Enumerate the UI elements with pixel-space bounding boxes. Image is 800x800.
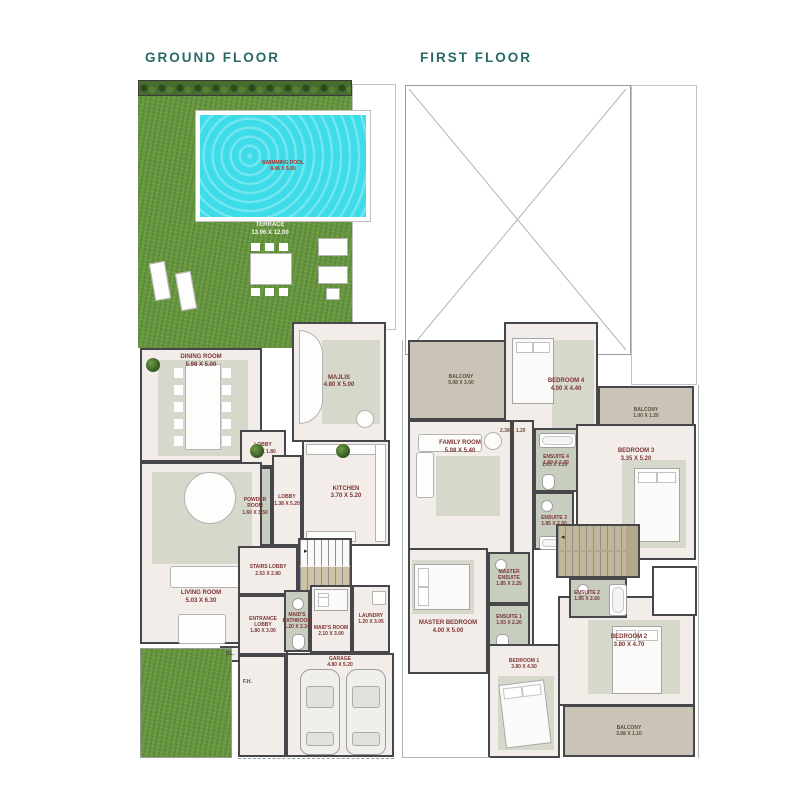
room-bedroom-1: BEDROOM 1 3.80 X 4.50 [488,644,560,758]
plant [336,444,350,458]
outdoor-armchair [318,266,348,284]
plant [146,358,160,372]
majlis-sofa [299,330,323,424]
sofa [170,566,244,588]
round-table [184,472,236,524]
room-stairs-lobby: STAIRS LOBBY 2.53 X 2.80 [238,546,298,595]
roof-cross-lines [406,86,629,353]
room-label: LIVING ROOM 5.03 X 6.30 [142,590,260,605]
stair-flight [558,552,626,576]
room-laundry: LAUNDRY 1.20 X 3.05 [352,585,390,653]
outdoor-chairs-row [251,288,291,296]
room-label: ENSUITE 3 1.85 X 2.50 [541,515,567,528]
kitchen-counter [375,444,386,542]
room-maids-bathroom: MAID'S BATHROOM 1.20 X 2.24 [284,590,310,652]
room-label: MASTER BEDROOM 4.00 X 5.00 [410,620,486,635]
bed [512,338,554,404]
room-balcony-left: BALCONY 5.08 X 3.00 [408,340,514,420]
plot-line [698,385,699,758]
washer [372,591,386,605]
stairs-direction-arrow: ▸ [304,548,308,555]
plot-line [402,757,490,758]
stair-flight [558,526,626,550]
loveseat [178,614,226,644]
room-label: MAJLIS 4.80 X 5.00 [324,375,355,390]
room-label: LOBBY 1.38 X 5.20 [274,494,300,507]
fire-hose-label: F.H. [243,679,252,685]
ground-floor-title: GROUND FLOOR [145,50,280,65]
room-ensuite-2: ENSUITE 2 1.85 X 2.60 [569,578,627,618]
pool-label: SWIMMING POOL 8.46 X 5.00 [262,160,304,173]
bathtub [539,433,576,448]
room-garage: GARAGE 4.80 X 5.20 [286,653,394,757]
toilet [542,474,555,490]
room-label: BEDROOM 1 3.80 X 4.50 [490,658,558,671]
swimming-pool: SWIMMING POOL 8.46 X 5.00 [196,111,370,221]
garden-grass-bottom [140,648,232,758]
closet-dim-label: 1.63 X 1.20 [542,462,578,468]
floorplan-canvas: GROUND FLOOR SWIMMING POOL 8.46 X 5.00 T… [0,0,800,800]
roof-void [405,85,631,355]
bed [498,679,551,748]
toilet [292,634,305,650]
family-rug [436,456,500,516]
room-label: BEDROOM 2 3.80 X 4.70 [594,634,664,649]
outdoor-chairs-row [251,243,291,251]
room-family: FAMILY ROOM 5.08 X 5.40 [408,420,512,566]
side-strip [631,85,697,385]
sink [292,598,304,610]
room-label: MASTER ENSUITE 1.85 X 2.25 [490,569,528,588]
room-ensuite-4: ENSUITE 4 1.60 X 2.30 [534,428,578,492]
terrace-name: TERRACE [210,222,330,230]
room-maids-room: MAID'S ROOM 2.10 X 3.00 [310,585,352,653]
plant [250,444,264,458]
terrace-label: TERRACE 13.06 X 12.00 [210,222,330,237]
room-label: MAID'S BATHROOM 1.20 X 2.24 [282,612,311,631]
room-label: BEDROOM 3 3.35 X 5.20 [578,448,694,463]
dining-chairs-right [222,368,231,446]
dining-table [185,364,221,450]
room-label: GARAGE 4.80 X 5.20 [327,656,353,669]
outdoor-side-table [326,288,340,300]
plot-line [402,340,403,758]
car [300,669,340,755]
pool-dims: 8.46 X 5.00 [262,166,304,172]
room-label: LAUNDRY 1.20 X 3.05 [358,613,384,626]
room-label: FAMILY ROOM 5.08 X 5.40 [410,440,510,455]
room-label: BALCONY 3.08 X 1.10 [616,725,642,738]
room-label: STAIRS LOBBY 2.53 X 2.80 [250,564,287,577]
room-majlis: MAJLIS 4.80 X 5.00 [292,322,386,442]
maids-bed [314,589,348,611]
sink [541,500,553,512]
room-lobby-2: LOBBY 1.38 X 5.20 [272,455,302,546]
bathtub [609,584,627,616]
bed [634,468,680,542]
room-label: BEDROOM 4 4.00 X 4.40 [536,378,596,393]
room-label: ENSUITE 2 1.85 X 2.60 [565,590,609,603]
first-floor-title: FIRST FLOOR [420,50,532,65]
hedge-row [138,80,352,96]
closet-dim-label: 2.38 X 1.20 [500,428,536,434]
room-master-ensuite: MASTER ENSUITE 1.85 X 2.25 [488,552,530,604]
majlis-armchair [356,410,374,428]
room-label: ENSUITE 1 1.93 X 2.20 [490,614,528,627]
bay-extension [652,566,697,616]
sofa [416,452,434,498]
room-label: ENTRANCE LOBBY 1.80 X 3.00 [240,616,286,635]
room-balcony-bottom: BALCONY 3.08 X 1.10 [563,705,695,757]
bed [414,564,470,610]
room-master-bedroom: MASTER BEDROOM 4.00 X 5.00 [408,548,488,674]
room-label: POWDER ROOM 1.60 X 3.50 [240,497,270,516]
entrance-walkway: F.H. [238,655,286,757]
stairs-direction-arrow: ◂ [561,534,565,541]
room-label: BALCONY 5.08 X 3.00 [448,374,474,387]
room-label: DINING ROOM 5.98 X 5.00 [180,354,221,369]
outdoor-armchair [318,238,348,256]
room-label: BALCONY 1.00 X 1.20 [633,407,659,420]
dining-chairs-left [174,368,183,446]
terrace-dims: 13.06 X 12.00 [210,230,330,238]
outdoor-dining-table [250,253,292,285]
car [346,669,386,755]
closet-label: CL. [226,651,234,657]
room-label: KITCHEN 3.70 X 5.20 [331,486,362,501]
room-label: MAID'S ROOM 2.10 X 3.00 [312,625,350,638]
first-stairs: ◂ [556,524,640,578]
plot-line-dashed [238,758,394,759]
